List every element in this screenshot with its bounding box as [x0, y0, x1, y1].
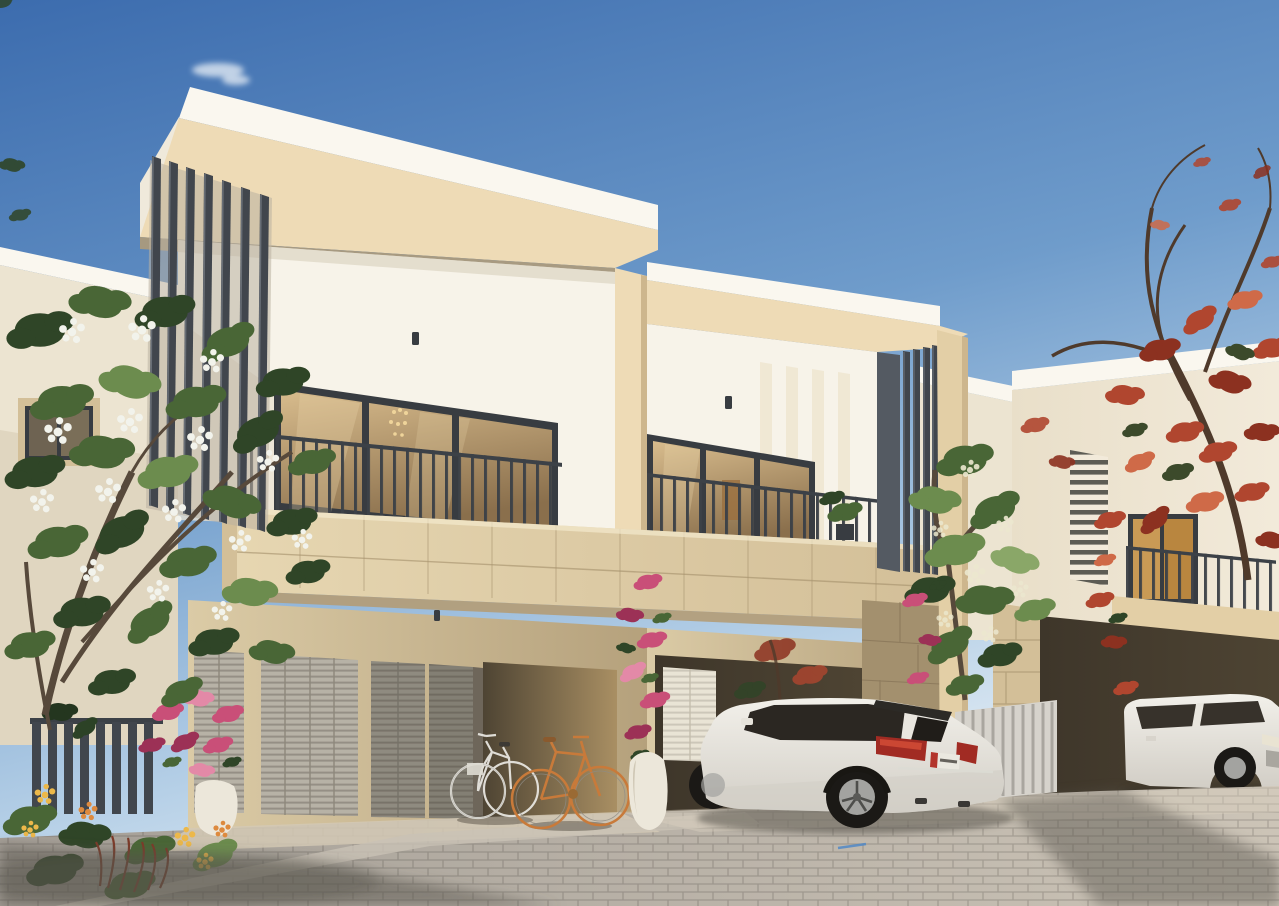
bicycle-crank	[568, 789, 578, 799]
second-suv-grille	[1266, 750, 1279, 768]
plate-characters	[940, 760, 957, 762]
bicycle-basket	[467, 763, 483, 775]
exhaust-tip	[958, 801, 970, 807]
wall-sconce	[434, 610, 440, 621]
main-suv-rim-far	[701, 773, 725, 797]
second-suv	[1120, 694, 1279, 802]
garage-door-shaded	[371, 661, 473, 819]
render-canvas	[0, 0, 1279, 906]
carport-corner-column	[473, 667, 483, 820]
bicycle-saddle	[543, 737, 556, 742]
bicycle-saddle	[499, 742, 510, 747]
mid-pillar-edge	[641, 275, 647, 548]
second-suv-rim	[1224, 757, 1246, 779]
wall-sconce	[725, 396, 732, 409]
license-plate	[930, 752, 960, 770]
garage-door	[261, 654, 358, 816]
exhaust-tip	[915, 798, 927, 804]
second-suv-mirror	[1146, 736, 1156, 741]
wall-sconce	[412, 332, 419, 345]
louver-fins-right	[877, 345, 938, 575]
main-suv-mirror	[741, 718, 753, 725]
